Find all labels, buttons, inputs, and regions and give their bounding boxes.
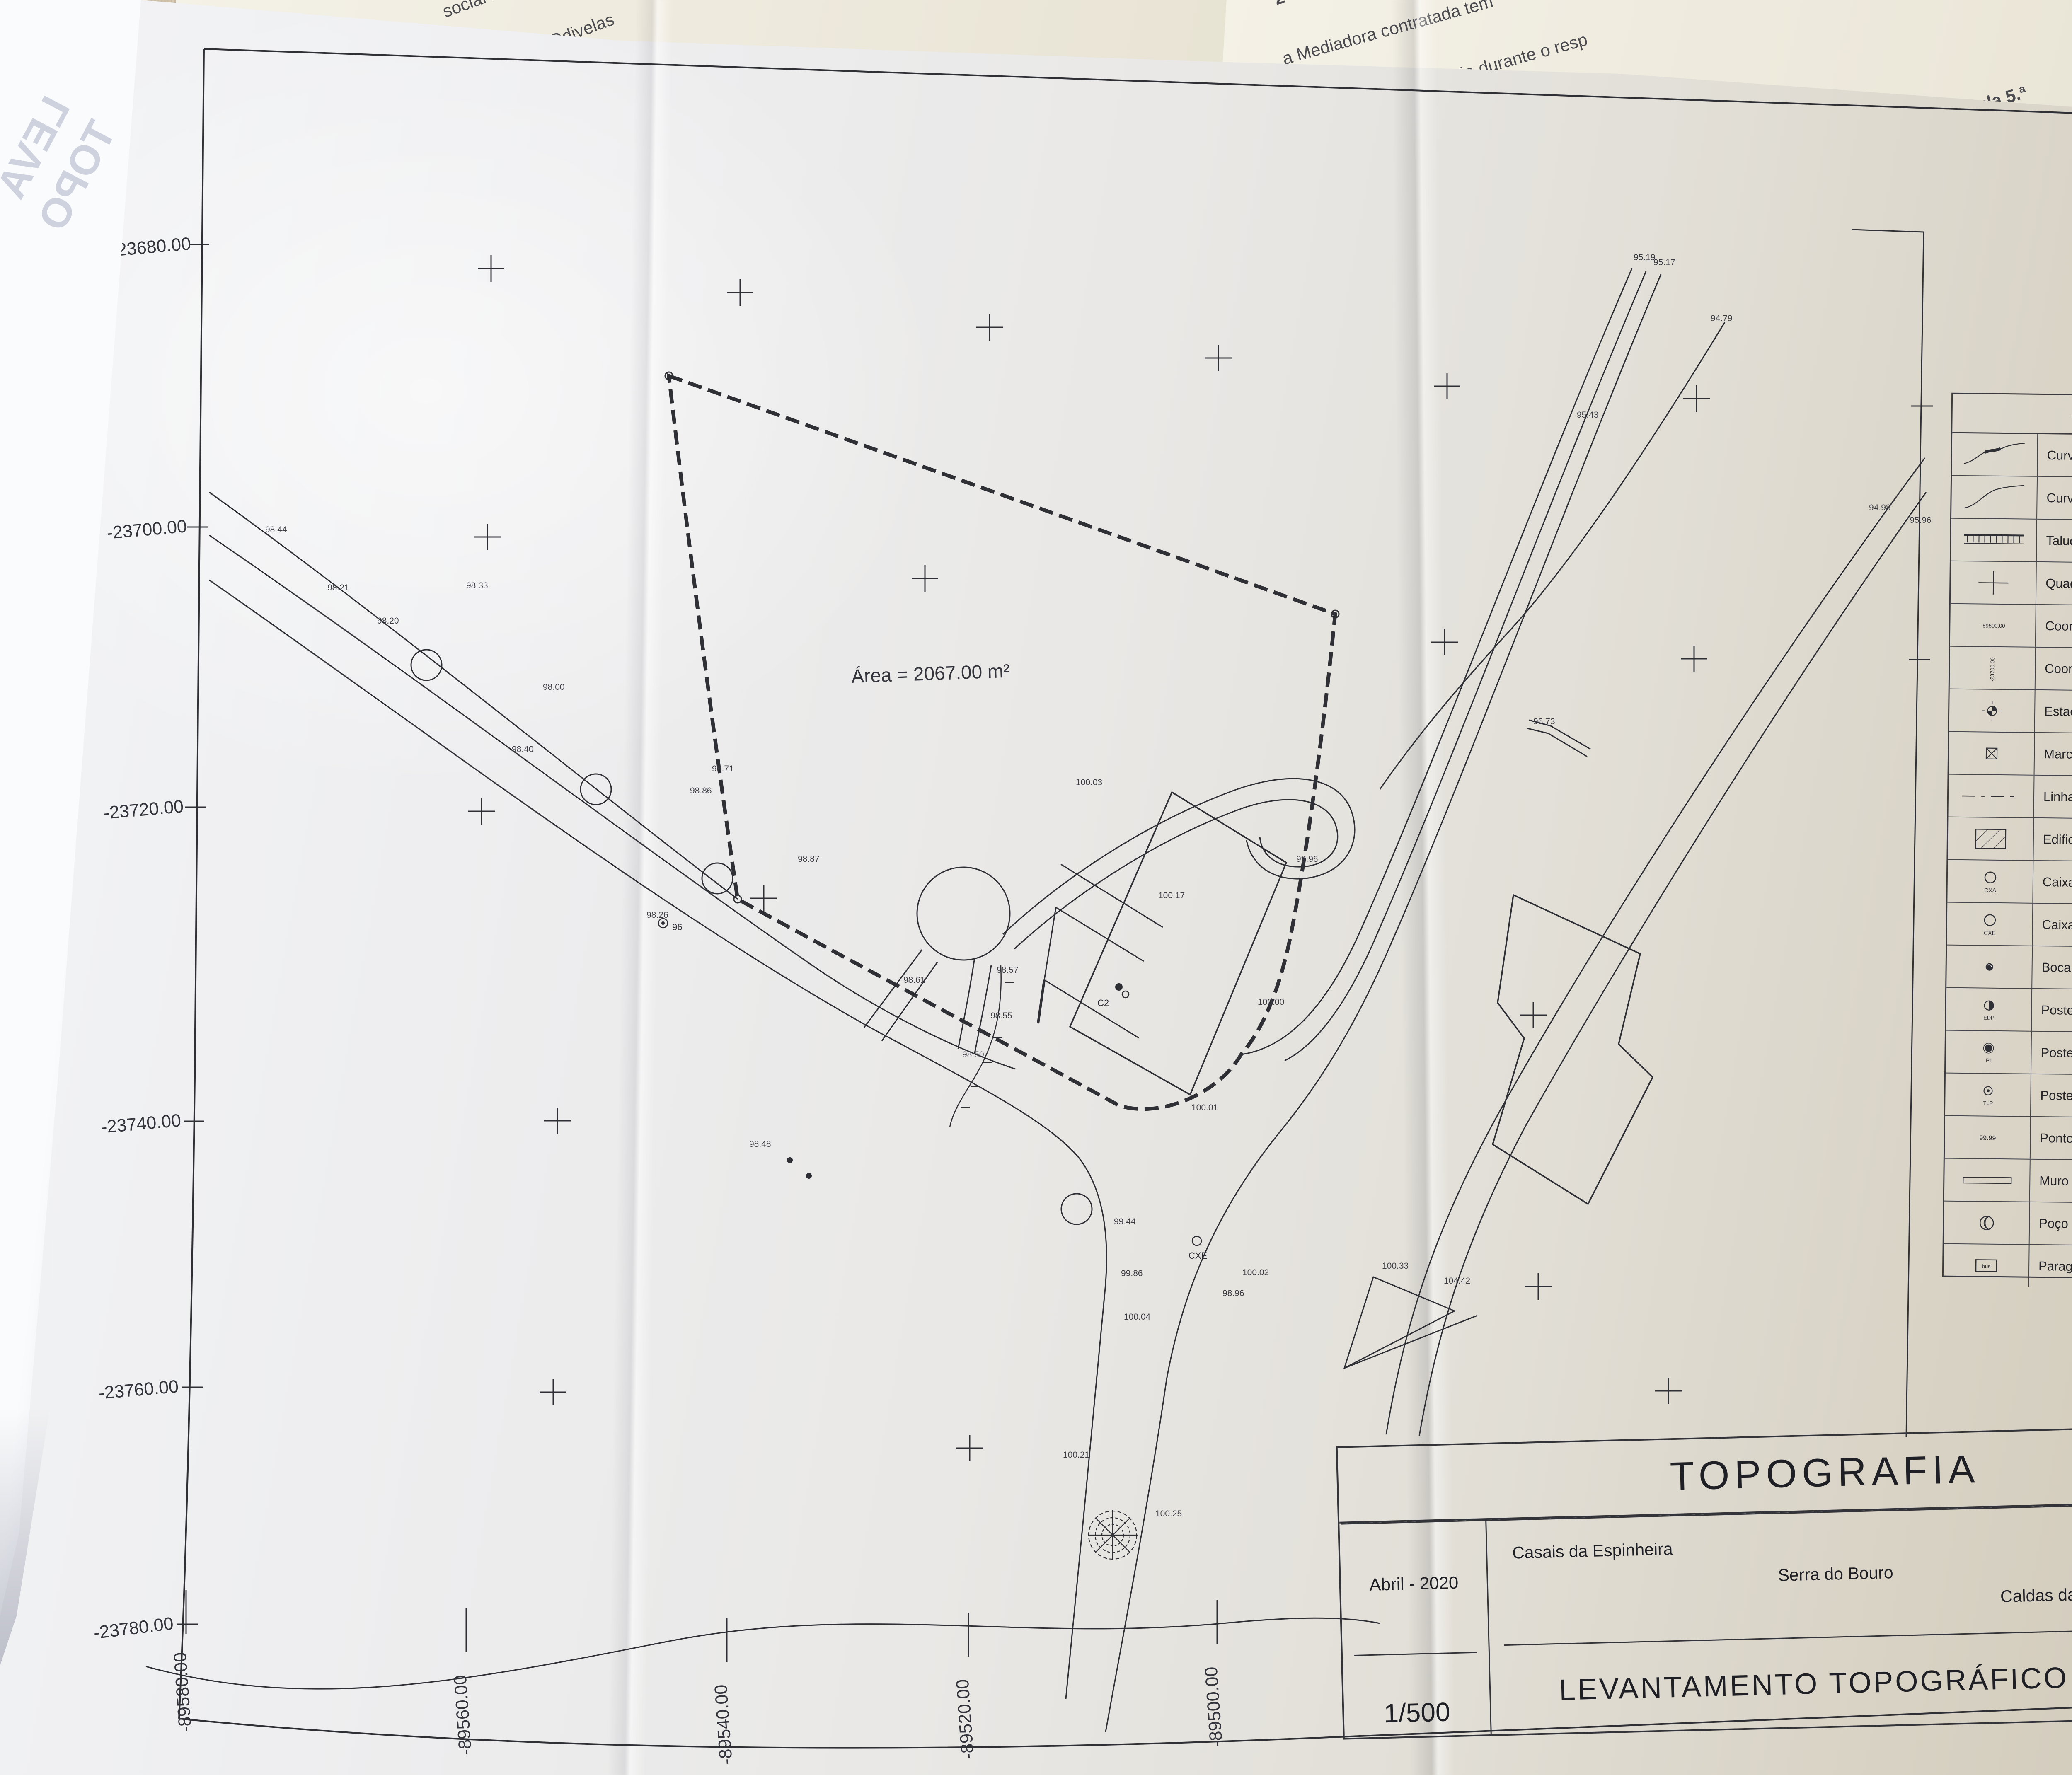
grid-ticks <box>177 244 1217 1662</box>
mirrored-cover-text: LEVATOPO <box>0 88 127 239</box>
legend-row: EDP Poste distribuição EDP <box>1946 988 2072 1035</box>
svg-text:98.33: 98.33 <box>466 581 488 590</box>
bus-stop-icon: bus <box>1944 1244 2030 1287</box>
legend-row: CXA Caixa abastecimento de água <box>1947 860 2072 907</box>
legend-row: Edificação <box>1948 817 2072 864</box>
svg-text:100.02: 100.02 <box>1242 1268 1269 1277</box>
svg-text:100.21: 100.21 <box>1063 1450 1089 1460</box>
hydrant-icon <box>1946 946 2033 988</box>
survey-markers: 96 C2 CXE <box>658 919 1207 1261</box>
svg-text:-89540.00: -89540.00 <box>711 1684 736 1765</box>
legend-row: TLP Poste de telecomunicações <box>1945 1074 2072 1120</box>
svg-text:94.79: 94.79 <box>1711 314 1733 323</box>
marker-label: 96 <box>672 922 682 932</box>
edp-pole-icon: EDP <box>1946 988 2032 1031</box>
drawing-subtitle: LEVANTAMENTO TOPOGRÁFICO <box>1490 1641 2072 1727</box>
svg-text:95.43: 95.43 <box>1577 410 1599 420</box>
place-name: Casais da Espinheira <box>1512 1539 1673 1562</box>
coordinate-m-icon: -23700.00 <box>1950 647 2036 689</box>
neighbor-building <box>1493 895 1653 1204</box>
svg-text:EDP: EDP <box>1983 1014 1994 1021</box>
svg-text:98.86: 98.86 <box>690 786 712 796</box>
svg-text:100.01: 100.01 <box>1191 1103 1218 1112</box>
place-name: Caldas da Rainha <box>2000 1584 2072 1606</box>
svg-text:98.00: 98.00 <box>543 682 565 692</box>
coordinate-p-icon: -89500.00 <box>1950 604 2036 647</box>
svg-text:95.19: 95.19 <box>1634 253 1656 262</box>
svg-text:98.87: 98.87 <box>798 854 820 864</box>
contour-line <box>146 1618 1380 1689</box>
divider <box>1504 1630 2072 1646</box>
svg-text:99.99: 99.99 <box>1979 1134 1996 1141</box>
spot-heights: 98.44 98.21 98.20 98.33 98.40 98.00 98.8… <box>265 253 1932 1519</box>
slope-icon <box>1951 519 2037 561</box>
svg-text:CXA: CXA <box>1984 887 1997 893</box>
legend-row: Marco de estrema de propriedade <box>1949 732 2072 779</box>
place-name: Serra do Bouro <box>1778 1563 1893 1585</box>
svg-text:98.26: 98.26 <box>646 910 668 920</box>
svg-text:98.48: 98.48 <box>749 1139 771 1149</box>
contour-major-icon <box>1952 433 2038 476</box>
svg-text:98.20: 98.20 <box>377 616 399 626</box>
m-coordinate-labels: -23680.00 -23700.00 -23720.00 -23740.00 … <box>92 234 192 1643</box>
legend-row: Estação <box>1949 689 2072 736</box>
legend-row: Curva de nível secundária <box>1951 476 2072 522</box>
legend-row: Quadrícula de coordenação <box>1951 561 2072 608</box>
svg-text:99.44: 99.44 <box>1114 1217 1136 1226</box>
property-boundary <box>665 372 1339 1109</box>
svg-text:-23720.00: -23720.00 <box>103 796 184 823</box>
light-pole-icon: PI <box>1946 1031 2032 1074</box>
svg-text:100.25: 100.25 <box>1155 1509 1182 1519</box>
svg-text:bus: bus <box>1982 1263 1991 1269</box>
sewer-box-icon: CXE <box>1947 903 2033 946</box>
svg-text:PI: PI <box>1986 1057 1991 1063</box>
svg-text:-23780.00: -23780.00 <box>92 1613 174 1643</box>
svg-text:100.33: 100.33 <box>1382 1261 1409 1271</box>
title-block-left-column: Abril - 2020 1/500 <box>1339 1520 1492 1738</box>
svg-text:100.00: 100.00 <box>1258 997 1284 1007</box>
legend-row: -23700.00 Coordenada m <box>1950 647 2072 693</box>
svg-text:100.04: 100.04 <box>1124 1312 1151 1322</box>
doc-text: social na <box>440 0 511 22</box>
legend-row: Muro <box>1944 1159 2072 1205</box>
svg-text:-89580.00: -89580.00 <box>170 1652 196 1733</box>
p-coordinate-labels: -89580.00 -89560.00 -89540.00 -89520.00 … <box>170 1652 1227 1765</box>
spot-height-icon: 99.99 <box>1945 1116 2031 1159</box>
svg-text:CXE: CXE <box>1984 929 1996 936</box>
legend: SIMBOLOGIA Curva de nível mestra com cot… <box>1942 393 2072 1281</box>
legend-row: Linha de estrema <box>1948 775 2072 821</box>
legend-row: Talude <box>1951 519 2072 565</box>
legend-title: SIMBOLOGIA <box>1952 394 2072 437</box>
svg-text:-23760.00: -23760.00 <box>98 1376 179 1403</box>
svg-text:-23700.00: -23700.00 <box>106 516 188 543</box>
svg-text:-89500.00: -89500.00 <box>1980 622 2005 629</box>
marker-label: C2 <box>1097 998 1109 1008</box>
svg-text:98.61: 98.61 <box>903 975 925 985</box>
legend-row: bus Paragem BUS <box>1944 1244 2072 1290</box>
divider <box>1354 1652 1477 1656</box>
legend-row: 99.99 Ponto de cota <box>1945 1116 2072 1163</box>
svg-text:95.96: 95.96 <box>1910 515 1932 525</box>
svg-text:99.96: 99.96 <box>1296 854 1318 864</box>
station-icon <box>1949 689 2036 732</box>
svg-text:100.17: 100.17 <box>1158 891 1185 900</box>
svg-text:100.03: 100.03 <box>1076 778 1102 787</box>
doc-text: 2- O regime <box>1272 0 1370 9</box>
svg-text:98.40: 98.40 <box>512 745 534 754</box>
water-box-icon: CXA <box>1947 860 2033 903</box>
buildings <box>1038 792 1653 1368</box>
legend-row: CXE Caixa de esgoto doméstico <box>1947 903 2072 949</box>
svg-text:-89560.00: -89560.00 <box>450 1674 476 1756</box>
svg-text:98.55: 98.55 <box>990 1011 1012 1021</box>
tree-symbol <box>1088 1510 1138 1560</box>
svg-text:98.71: 98.71 <box>712 764 734 774</box>
boundary-line-icon <box>1948 775 2034 817</box>
marker-label: CXE <box>1188 1250 1207 1261</box>
legend-row: Poço <box>1944 1202 2072 1248</box>
svg-text:-89500.00: -89500.00 <box>1201 1666 1227 1748</box>
svg-text:94.98: 94.98 <box>1869 503 1891 513</box>
grid-crosses <box>468 255 1710 1461</box>
well-icon <box>1944 1202 2030 1244</box>
svg-text:98.96: 98.96 <box>1222 1289 1244 1298</box>
svg-text:95.17: 95.17 <box>1653 258 1675 267</box>
main-building <box>1070 792 1286 1095</box>
legend-row: PI Poste de iluminação <box>1946 1031 2072 1077</box>
legend-row: Boca de incêndio <box>1946 946 2072 992</box>
legend-row: Curva de nível mestra com cota <box>1952 433 2072 480</box>
svg-text:99.86: 99.86 <box>1121 1269 1143 1278</box>
contour-minor-icon <box>1951 476 2038 519</box>
svg-text:98.57: 98.57 <box>997 965 1019 975</box>
legend-row: -89500.00 Coordenada p <box>1950 604 2072 651</box>
svg-text:-23740.00: -23740.00 <box>100 1110 182 1137</box>
telecom-pole-icon: TLP <box>1945 1074 2031 1116</box>
title-block-middle-column: Casais da Espinheira Serra do Bouro Cald… <box>1486 1504 2072 1734</box>
ruin-building <box>1344 1277 1455 1368</box>
driveway <box>864 720 1590 1127</box>
svg-text:98.50: 98.50 <box>962 1050 984 1059</box>
svg-text:98.44: 98.44 <box>265 525 287 534</box>
building-icon <box>1948 817 2034 860</box>
svg-text:104.42: 104.42 <box>1444 1276 1470 1286</box>
boundary-marker-icon <box>1949 732 2035 775</box>
svg-text:98.21: 98.21 <box>327 583 349 592</box>
wall-icon <box>1944 1159 2031 1202</box>
doc-text: a Mediadora contratada tem <box>1280 0 1495 69</box>
title-block: TOPOGRAFIA Abril - 2020 1/500 Casais da … <box>1336 1422 2072 1739</box>
svg-text:TLP: TLP <box>1983 1100 1993 1106</box>
drawing-date: Abril - 2020 <box>1339 1520 1488 1648</box>
drawing-scale: 1/500 <box>1344 1695 1491 1730</box>
grid-cross-icon <box>1951 561 2037 604</box>
area-label: Área = 2067.00 m² <box>851 660 1010 687</box>
svg-text:-23700.00: -23700.00 <box>1989 657 1995 682</box>
svg-text:96.73: 96.73 <box>1533 717 1555 726</box>
